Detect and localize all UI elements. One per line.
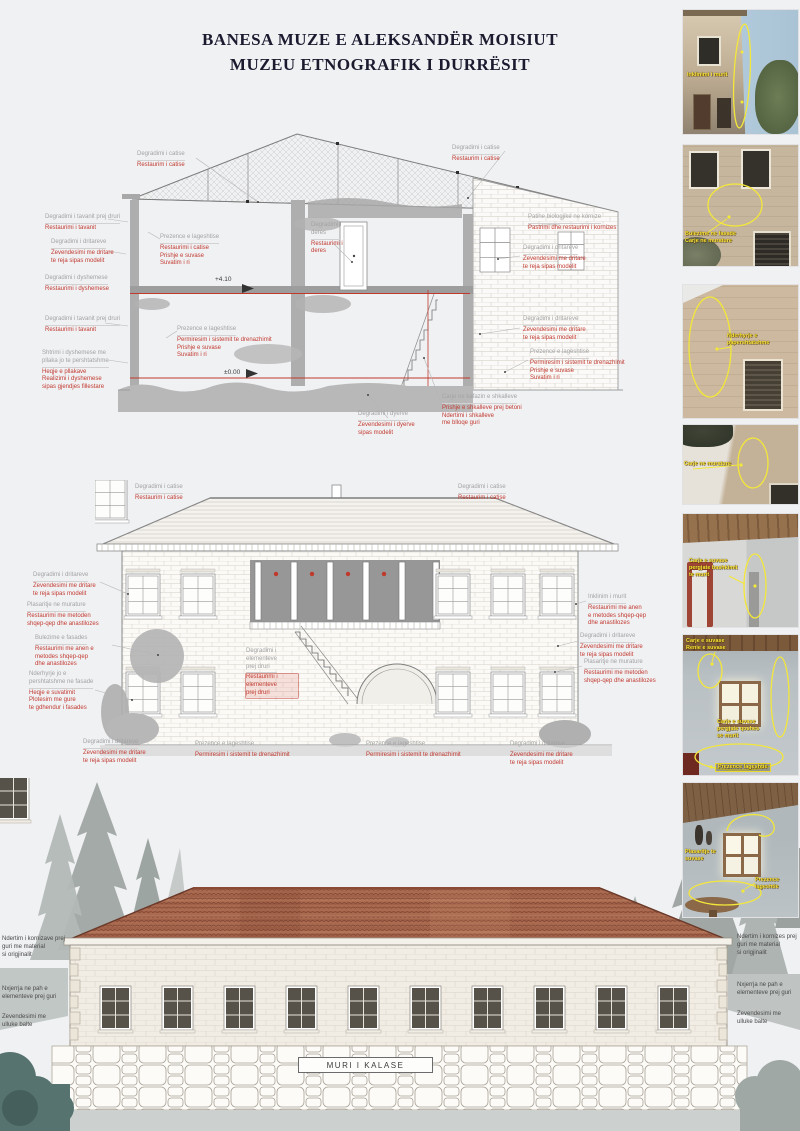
ann-elev-wall-incline: Inklinim i muritRestaurimi me anen e met… (588, 594, 646, 628)
poster: BANESA MUZE E ALEKSANDËR MOISIUT MUZEU E… (0, 0, 800, 1131)
title-line-1: BANESA MUZE E ALEKSANDËR MOISIUT (60, 28, 700, 53)
ann-sec-damp-upper: Prezence e lageshtiseRestaurimi i catise… (160, 234, 219, 268)
ann-elev-windows-upleft: Degradimi i dritareveZevendesimi me drit… (33, 572, 96, 598)
ann-sec-ceiling-lower: Degradimi i tavanit prej druriRestaurimi… (45, 316, 120, 335)
ann-sec-windows-right-1: Degradimi i dritareveZevendesimi me drit… (523, 245, 586, 271)
ann-sec-door: Degradimi i deresRestaurimi i deres (311, 222, 361, 256)
photo-4-label: Carje ne murature (684, 461, 731, 468)
ann-elev-windows-botleft: Degradimi i dritareveZevendesimi me drit… (83, 739, 146, 765)
photo-2-label: Bulezime ne fasade Carje ne murature (685, 231, 736, 245)
ann-elev-facade-blister: Bulezime e fasadesRestaurimi me anen e m… (35, 635, 94, 669)
highlight-ellipses (683, 635, 798, 775)
poster-title: BANESA MUZE E ALEKSANDËR MOISIUT MUZEU E… (60, 28, 700, 77)
photo-7-label-2: Prezence lageshtie (755, 877, 779, 891)
photo-3-wall-intervention: Nderhyrje e papershtatshme (683, 285, 798, 418)
photo-5-interior-joint: Carje e suvase pergjate bashkimit te mur… (683, 514, 798, 627)
ann-elev-roof-right: Degradimi i catiseRestaurim i catise (458, 484, 506, 503)
level-upper: +4.10 (215, 276, 231, 283)
photo-6-interior-window: Carje e suvase Renie e suvase Carje e su… (683, 635, 798, 775)
photo-5-label: Carje e suvase pergjate bashkimit te mur… (689, 558, 738, 579)
level-ground: ±0.00 (224, 369, 240, 376)
ann-elev-cracks-right: Plasaritje ne muratureRestaurimi me meto… (584, 659, 656, 685)
ann-elev-damp-botright: Prezence e lageshtisePermiresim i sistem… (366, 741, 516, 760)
ann-bottom-left-gutter: Zevendesimi me ulluke balte (2, 1014, 46, 1030)
ann-sec-windows-right-2: Degradimi i dritareveZevendesimi me drit… (523, 316, 586, 342)
elevation-drawing (95, 480, 622, 765)
photo-4-corner-crack: Carje ne murature (683, 425, 798, 504)
photo-6-label-2: Carje e suvase pergjate qoshes se murit (717, 719, 759, 740)
highlight-ellipse (683, 285, 798, 418)
ann-sec-stairs: Carje ne kafazin e shkallevePrishje e sh… (442, 394, 567, 428)
ann-sec-roof-right: Degradimi i catiseRestaurim i catise (452, 145, 500, 164)
ann-sec-paving: Shtrimi i dyshemese me pllaka jo te pers… (42, 350, 109, 392)
ann-sec-roof-left: Degradimi i catiseRestaurim i catise (137, 151, 185, 170)
ann-sec-doors: Degradimi i dyerveZevendesimi i dyerve s… (358, 411, 415, 437)
highlight-circle (683, 145, 798, 266)
ann-sec-damp-right: Prezence e lageshtisePermiresim i sistem… (530, 349, 660, 383)
ann-bottom-right-cornice: Ndertim i kornizes prej guri me material… (737, 934, 797, 957)
photo-1-label: Inklinimi i murit (687, 72, 728, 79)
ann-elev-windows-botright: Degradimi i dritareveZevendesimi me drit… (510, 741, 573, 767)
section-drawing (118, 122, 623, 434)
photo-7-interior-damp: Plasaritje te suvase Prezence lageshtie (683, 783, 798, 917)
photo-1-building-corner: Inklinimi i murit (683, 10, 798, 134)
photo-3-label: Nderhyrje e papershtatshme (727, 333, 770, 347)
ann-elev-roof-left: Degradimi i catiseRestaurim i catise (135, 484, 183, 503)
ann-elev-wood-elements: Degradimi i elementeve prej druriRestaur… (246, 648, 298, 698)
ann-sec-floor: Degradimi i dyshemeseRestaurimi i dyshem… (45, 275, 109, 294)
title-line-2: MUZEU ETNOGRAFIK I DURRËSIT (60, 53, 700, 78)
ann-sec-ceiling-upper: Degradimi i tavanit prej druriRestaurimi… (45, 214, 120, 233)
ann-elev-intervention: Nderhyrje jo e pershtatshme ne fasadeHeq… (29, 671, 93, 713)
photo-6-label-3: Prezence lageshtie (715, 763, 771, 772)
ann-elev-windows-right: Degradimi i dritareveZevendesimi me drit… (580, 633, 643, 659)
wall-label: MURI I KALASE (298, 1057, 433, 1073)
ann-bottom-right-gutter: Zevendesimi me ulluke balte (737, 1011, 781, 1027)
ann-sec-damp-lower: Prezence e lageshtisePermiresim i sistem… (177, 326, 312, 360)
ann-bottom-right-stone: Nxjerrja ne pah e elementeve prej guri (737, 982, 791, 998)
ann-elev-cracks-left: Plasaritje ne muratureRestaurimi me meto… (27, 602, 99, 628)
photo-6-label-1: Carje e suvase Renie e suvase (686, 638, 726, 652)
ann-elev-damp-botleft: Prezence e lageshtisePermiresim i sistem… (195, 741, 345, 760)
ann-bottom-left-stone: Nxjerrja ne pah e elementeve prej guri (2, 986, 56, 1002)
ann-sec-cornice: Patine biologjike ne kornizePastrimi dhe… (528, 214, 653, 233)
ann-sec-windows-left: Degradimi i dritareveZevendesimi me drit… (51, 239, 114, 265)
photo-7-label-1: Plasaritje te suvase (685, 849, 716, 863)
ann-bottom-left-cornice: Ndertim i kornizave prej guri me materia… (2, 936, 65, 959)
bottom-elevation (0, 778, 800, 1131)
photo-2-stone-facade: Bulezime ne fasade Carje ne murature (683, 145, 798, 266)
